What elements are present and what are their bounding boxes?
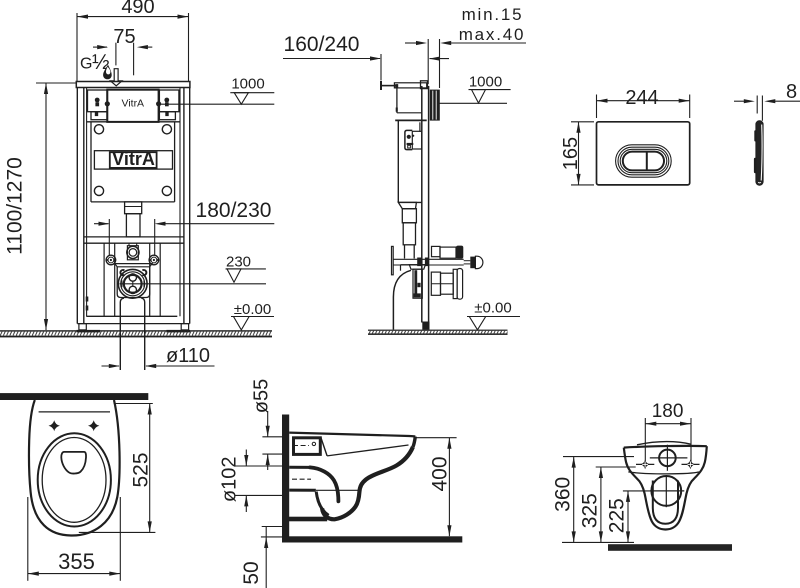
svg-text:230: 230 bbox=[226, 254, 251, 271]
svg-text:G: G bbox=[80, 56, 92, 73]
svg-text:ø110: ø110 bbox=[166, 345, 210, 367]
svg-text:180: 180 bbox=[652, 401, 684, 422]
svg-text:160/240: 160/240 bbox=[284, 33, 360, 56]
svg-text:75: 75 bbox=[113, 26, 135, 48]
svg-text:±0.00: ±0.00 bbox=[234, 301, 271, 318]
svg-text:225: 225 bbox=[606, 498, 629, 533]
svg-text:325: 325 bbox=[579, 493, 602, 528]
svg-text:VitrA: VitrA bbox=[122, 98, 145, 110]
svg-text:1000: 1000 bbox=[469, 74, 502, 91]
svg-text:1100/1270: 1100/1270 bbox=[4, 157, 27, 255]
svg-text:244: 244 bbox=[625, 87, 658, 109]
svg-text:ø55: ø55 bbox=[251, 379, 273, 413]
svg-text:VitrA: VitrA bbox=[112, 149, 155, 169]
svg-text:490: 490 bbox=[121, 0, 154, 18]
svg-text:±0.00: ±0.00 bbox=[474, 300, 511, 317]
svg-text:min.15: min.15 bbox=[462, 5, 524, 24]
svg-text:50: 50 bbox=[240, 561, 263, 584]
svg-text:max.40: max.40 bbox=[459, 25, 526, 44]
svg-text:1000: 1000 bbox=[231, 76, 264, 93]
svg-text:180/230: 180/230 bbox=[196, 199, 272, 222]
svg-text:400: 400 bbox=[429, 456, 452, 491]
svg-text:525: 525 bbox=[130, 452, 153, 487]
svg-text:355: 355 bbox=[58, 549, 95, 574]
svg-text:360: 360 bbox=[552, 477, 575, 512]
svg-text:8: 8 bbox=[786, 81, 797, 103]
